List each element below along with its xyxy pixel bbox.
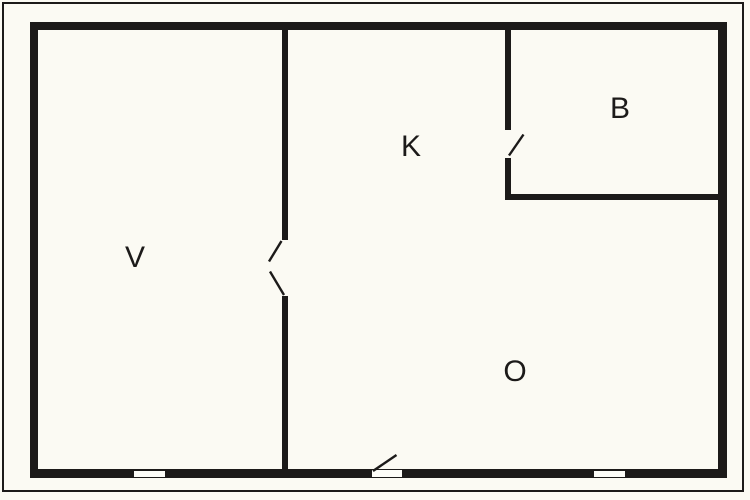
wall-k-b-upper-segment — [505, 30, 511, 130]
room-label-k: K — [401, 132, 421, 162]
wall-exterior-left — [30, 22, 38, 478]
window-room-o — [593, 470, 626, 478]
wall-b-bottom — [505, 194, 724, 200]
window-room-v — [133, 470, 166, 478]
room-label-o: O — [503, 357, 526, 387]
floor-plan-canvas: V K B O — [0, 0, 750, 500]
room-label-b: B — [610, 94, 630, 124]
wall-v-k-upper-segment — [282, 30, 288, 240]
wall-v-k-lower-segment — [282, 296, 288, 469]
outer-frame-border — [2, 2, 744, 492]
wall-exterior-right — [718, 22, 727, 478]
wall-exterior-top — [30, 22, 727, 30]
room-label-v: V — [125, 243, 145, 273]
entrance-door-threshold — [371, 469, 403, 478]
wall-k-b-lower-segment — [505, 158, 511, 194]
